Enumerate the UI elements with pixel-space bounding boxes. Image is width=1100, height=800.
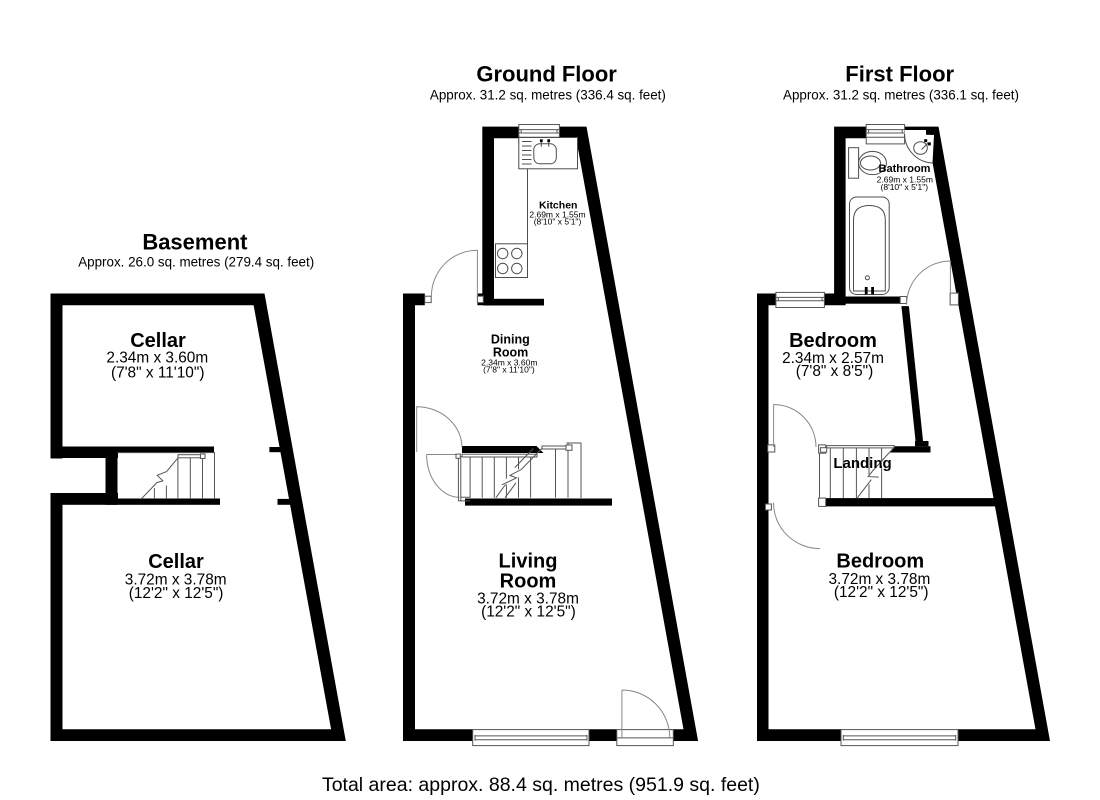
svg-text:Total area: approx. 88.4 sq. m: Total area: approx. 88.4 sq. metres (951… <box>322 774 760 796</box>
svg-text:First Floor: First Floor <box>845 62 954 87</box>
svg-text:(12'2" x 12'5"): (12'2" x 12'5") <box>834 584 929 601</box>
svg-text:(12'2" x 12'5"): (12'2" x 12'5") <box>481 604 576 621</box>
svg-text:Approx. 26.0 sq. metres (279.4: Approx. 26.0 sq. metres (279.4 sq. feet) <box>78 255 314 270</box>
svg-text:(7'8" x 11'10"): (7'8" x 11'10") <box>111 364 205 381</box>
svg-text:(8'10" x 5'1"): (8'10" x 5'1") <box>534 217 582 227</box>
svg-text:Cellar: Cellar <box>148 551 204 573</box>
svg-text:(7'8" x 11'10"): (7'8" x 11'10") <box>483 364 535 374</box>
svg-text:Bedroom: Bedroom <box>836 550 924 572</box>
svg-text:Bathroom: Bathroom <box>879 163 931 175</box>
svg-text:Bedroom: Bedroom <box>789 330 877 352</box>
svg-text:Ground Floor: Ground Floor <box>476 62 617 87</box>
svg-text:(12'2" x 12'5"): (12'2" x 12'5") <box>129 585 224 602</box>
svg-text:Dining: Dining <box>491 333 530 347</box>
svg-text:Approx. 31.2 sq. metres (336.1: Approx. 31.2 sq. metres (336.1 sq. feet) <box>783 87 1019 102</box>
svg-text:Basement: Basement <box>142 229 248 254</box>
svg-text:Landing: Landing <box>833 455 891 472</box>
svg-text:(8'10" x 5'1"): (8'10" x 5'1") <box>881 182 929 192</box>
svg-text:(7'8" x 8'5"): (7'8" x 8'5") <box>796 363 874 380</box>
svg-text:Approx. 31.2 sq. metres (336.4: Approx. 31.2 sq. metres (336.4 sq. feet) <box>430 87 666 102</box>
svg-text:Living: Living <box>499 550 558 572</box>
